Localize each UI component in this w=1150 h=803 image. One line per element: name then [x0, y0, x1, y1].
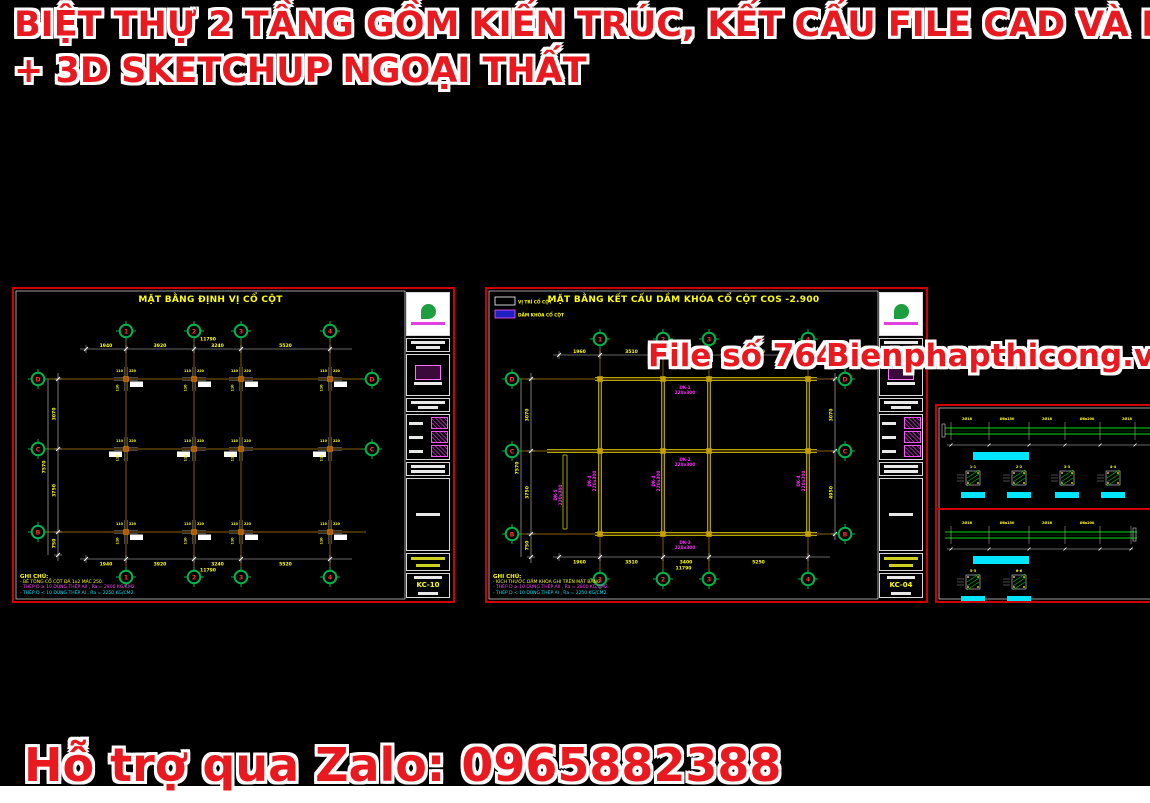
rebar-dot — [1013, 576, 1015, 578]
col-dim-text: 110 — [320, 454, 324, 462]
col-dim-text: 220 — [197, 439, 205, 443]
rebar-dot — [1107, 482, 1109, 484]
dim-text: 3750 — [525, 486, 531, 499]
grid-bubble-label: D — [842, 376, 847, 383]
column-mark — [192, 377, 197, 382]
dim-text: 3750 — [52, 484, 58, 497]
section-label: 3-3 — [1064, 465, 1071, 469]
col-dim-text: 110 — [320, 439, 328, 443]
section-label: 5-5 — [970, 569, 977, 573]
beam-size: 220x300 — [675, 545, 696, 551]
section-label: 6-6 — [1016, 569, 1023, 573]
col-dim-text: 110 — [231, 369, 239, 373]
rebar-dot — [1061, 472, 1063, 474]
col-dim-text: 110 — [116, 384, 120, 392]
grid-bubble-label: B — [36, 529, 41, 536]
column-mark — [328, 530, 333, 535]
column-mark — [328, 447, 333, 452]
section-hatch — [967, 578, 979, 586]
rebar-dot — [967, 576, 969, 578]
tb-sheet-number-box: KC-10 — [406, 573, 450, 598]
column-label-patch — [198, 382, 211, 388]
rebar-label: 2Ø18 — [1122, 416, 1133, 421]
col-dim-text: 110 — [184, 537, 188, 545]
section-title-bar — [1007, 492, 1031, 498]
column-mark — [192, 530, 197, 535]
col-dim-text: 220 — [197, 522, 205, 526]
column-mark — [124, 447, 129, 452]
col-dim-text: 110 — [320, 369, 328, 373]
dim-text: 3510 — [625, 349, 638, 355]
page-title: BIỆT THỰ 2 TẦNG GỒM KIẾN TRÚC, KẾT CẤU F… — [14, 2, 1150, 94]
column-mark — [805, 531, 811, 537]
section-title-bar — [961, 596, 985, 601]
rebar-dot — [1023, 586, 1025, 588]
section-hatch — [1013, 578, 1025, 586]
beam-size: 220x300 — [675, 462, 696, 468]
grid-bubble-label: 1 — [124, 328, 128, 335]
tb-text-box — [879, 478, 923, 551]
column-mark — [660, 531, 666, 537]
col-dim-text: 110 — [116, 537, 120, 545]
beam-size: 220x300 — [801, 471, 807, 492]
column-mark — [706, 531, 712, 537]
rebar-dot — [1107, 472, 1109, 474]
page-title-line2: + 3D SKETCHUP NGOẠI THẤT — [14, 48, 1150, 94]
section-label: 1-1 — [970, 465, 977, 469]
beam-size: 220x300 — [592, 471, 598, 492]
dim-text: 3240 — [211, 561, 224, 567]
beam-size: 220x300 — [558, 485, 564, 506]
beam-end-plate — [1133, 528, 1136, 541]
column-mark — [597, 376, 603, 382]
tb-text-box — [879, 398, 923, 412]
column-plan-drawing: 1940392032405520117901940392032405520117… — [14, 289, 407, 601]
beam-detail-drawing: 2Ø18Ø6a1502Ø18Ø6a2002Ø181-12-23-34-42Ø16… — [937, 406, 1150, 601]
tb-text-box — [406, 338, 450, 352]
section-title-bar — [1101, 492, 1125, 498]
dim-text: 3920 — [154, 561, 167, 567]
grid-bubble-label: 4 — [328, 574, 333, 581]
column-mark — [124, 530, 129, 535]
rebar-dot — [977, 576, 979, 578]
dim-text: 3070 — [52, 408, 58, 421]
grid-bubble-label: 3 — [239, 328, 243, 335]
column-label-patch — [245, 382, 258, 388]
dim-text: 750 — [52, 539, 58, 549]
dim-text: 3920 — [154, 343, 167, 349]
beam-label: DK-4220x300 — [796, 471, 807, 492]
note-line: - THÉP D < 10 DÙNG THÉP AI , Ra = 2250 K… — [20, 591, 230, 597]
rebar-dot — [1013, 482, 1015, 484]
col-dim-text: 220 — [333, 369, 341, 373]
stamp-icon — [431, 445, 448, 457]
column-mark — [597, 531, 603, 537]
col-dim-text: 110 — [116, 522, 124, 526]
col-dim-text: 110 — [231, 454, 235, 462]
column-mark — [660, 448, 666, 454]
rebar-dot — [1013, 586, 1015, 588]
column-label-patch — [130, 535, 143, 541]
rebar-dot — [1013, 472, 1015, 474]
tb-website-box — [879, 553, 923, 571]
col-dim-text: 110 — [184, 369, 192, 373]
section-hatch — [1013, 474, 1025, 482]
col-dim-text: 110 — [320, 384, 324, 392]
column-mark — [328, 377, 333, 382]
col-dim-text: 110 — [116, 439, 124, 443]
col-dim-text: 220 — [197, 369, 205, 373]
beam-end-plate — [942, 424, 945, 437]
dim-total-text: 7570 — [515, 462, 521, 475]
rebar-label: Ø6a150 — [1000, 520, 1015, 525]
tb-signature-box — [406, 414, 450, 460]
dim-text: 5250 — [752, 559, 765, 565]
grid-bubble-label: 1 — [598, 336, 602, 343]
col-dim-text: 220 — [244, 522, 252, 526]
dim-text: 1940 — [100, 343, 113, 349]
rebar-dot — [1023, 482, 1025, 484]
section-title-bar — [1007, 596, 1031, 601]
stamp-icon — [904, 445, 921, 457]
beam-plan-drawing: 1960351034005250117901960351034005250117… — [487, 289, 880, 601]
col-dim-text: 110 — [231, 537, 235, 545]
col-dim-text: 110 — [116, 369, 124, 373]
logo-caption-bar — [411, 322, 445, 325]
zalo-support-text: Hỗ trợ qua Zalo: 0965882388 — [24, 738, 781, 792]
legend-swatch-beam — [495, 310, 515, 318]
leaf-logo-icon — [894, 304, 909, 319]
sheet-number: KC-10 — [408, 581, 448, 590]
grid-bubble-label: C — [370, 446, 375, 453]
section-title-bar — [961, 492, 985, 498]
stamp-icon — [431, 431, 448, 443]
beam-label: DK-5220x300 — [553, 485, 564, 506]
beam-label: DK-4220x300 — [587, 471, 598, 492]
stamp-icon — [904, 417, 921, 429]
sheet2-title: MẶT BẰNG KẾT CẤU DẦM KHÓA CỔ CỘT COS -2.… — [487, 295, 880, 305]
column-label-patch — [198, 535, 211, 541]
rebar-dot — [1117, 482, 1119, 484]
column-mark — [805, 376, 811, 382]
stamp-icon — [431, 417, 448, 429]
col-dim-text: 110 — [320, 522, 328, 526]
col-dim-text: 110 — [184, 439, 192, 443]
rebar-dot — [967, 586, 969, 588]
col-dim-text: 110 — [231, 384, 235, 392]
dim-text: 5520 — [279, 343, 292, 349]
note-line: - THÉP D < 10 DÙNG THÉP AI , Ra = 2250 K… — [493, 591, 703, 597]
col-dim-text: 220 — [129, 522, 137, 526]
column-label-patch — [334, 382, 347, 388]
col-dim-text: 220 — [129, 439, 137, 443]
rebar-dot — [977, 586, 979, 588]
cad-sheet-beam-plan: 1960351034005250117901960351034005250117… — [485, 287, 928, 603]
col-dim-text: 110 — [184, 454, 188, 462]
legend-label: DẦM KHÓA CỔ CỘT — [518, 310, 564, 319]
col-dim-text: 110 — [231, 439, 239, 443]
dim-total-text: 7570 — [42, 461, 48, 474]
grid-bubble-label: 4 — [328, 328, 333, 335]
tb-text-box — [406, 478, 450, 551]
column-label-patch — [245, 535, 258, 541]
laptop-icon — [415, 365, 441, 380]
beam-label: DK-4220x300 — [651, 471, 662, 492]
beam-size: 220x300 — [675, 390, 696, 396]
grid-bubble-label: 4 — [806, 576, 811, 583]
section-hatch — [1061, 474, 1073, 482]
rebar-dot — [1023, 576, 1025, 578]
sheet2-notes: GHI CHÚ: - KÍCH THƯỚC DẦM KHÓA GHI TRÊN … — [493, 574, 703, 597]
column-label-patch — [130, 382, 143, 388]
grid-bubble-label: C — [510, 448, 515, 455]
rebar-label: Ø6a200 — [1080, 520, 1095, 525]
col-dim-text: 110 — [184, 522, 192, 526]
column-mark — [706, 376, 712, 382]
grid-bubble-label: B — [843, 531, 848, 538]
rebar-dot — [1023, 472, 1025, 474]
dim-text: 5520 — [279, 561, 292, 567]
grid-bubble-label: D — [369, 376, 374, 383]
dim-text: 1960 — [573, 559, 586, 565]
tb-text-box — [879, 462, 923, 476]
company-logo — [879, 292, 923, 336]
sheet1-title-block: KC-10 — [405, 291, 451, 599]
column-mark — [239, 530, 244, 535]
sheet1-title: MẶT BẰNG ĐỊNH VỊ CỔ CỘT — [14, 295, 407, 305]
col-dim-text: 220 — [333, 522, 341, 526]
dim-total-text: 11790 — [200, 337, 216, 343]
rebar-dot — [1117, 472, 1119, 474]
column-mark — [124, 377, 129, 382]
cad-sheet-column-plan: 1940392032405520117901940392032405520117… — [12, 287, 455, 603]
col-dim-text: 110 — [320, 537, 324, 545]
tb-website-box — [406, 553, 450, 571]
col-dim-text: 220 — [244, 439, 252, 443]
col-dim-text: 220 — [244, 369, 252, 373]
rebar-dot — [1061, 482, 1063, 484]
column-mark — [660, 376, 666, 382]
watermark-website: Bienphapthicong.vn — [826, 338, 1150, 374]
col-dim-text: 110 — [184, 384, 188, 392]
dim-text: 3400 — [680, 559, 693, 565]
grid-bubble-label: B — [510, 531, 515, 538]
rebar-dot — [977, 472, 979, 474]
rebar-dot — [977, 482, 979, 484]
section-title-bar — [1055, 492, 1079, 498]
grid-bubble-label: D — [35, 376, 40, 383]
detail-title-bar — [973, 556, 1029, 564]
column-mark — [597, 448, 603, 454]
tb-sheet-number-box: KC-04 — [879, 573, 923, 598]
column-mark — [805, 448, 811, 454]
section-hatch — [967, 474, 979, 482]
dim-text: 1940 — [100, 561, 113, 567]
tb-image-box — [406, 354, 450, 396]
rebar-label: 2Ø16 — [1042, 520, 1053, 525]
column-mark — [706, 448, 712, 454]
rebar-dot — [967, 482, 969, 484]
col-dim-text: 220 — [333, 439, 341, 443]
company-logo — [406, 292, 450, 336]
logo-caption-bar — [884, 322, 918, 325]
tb-text-box — [406, 398, 450, 412]
dim-text: 750 — [525, 541, 531, 551]
dim-text: 1960 — [573, 349, 586, 355]
grid-bubble-label: 2 — [192, 328, 196, 335]
rebar-dot — [967, 472, 969, 474]
leaf-logo-icon — [421, 304, 436, 319]
column-mark — [239, 377, 244, 382]
col-dim-text: 220 — [129, 369, 137, 373]
rebar-label: 2Ø18 — [1042, 416, 1053, 421]
rebar-label: 2Ø16 — [962, 520, 973, 525]
column-mark — [239, 447, 244, 452]
beam-size: 220x300 — [656, 471, 662, 492]
dim-text: 3240 — [211, 343, 224, 349]
col-dim-text: 110 — [231, 522, 239, 526]
dim-text: 3510 — [625, 559, 638, 565]
section-label: 4-4 — [1110, 465, 1117, 469]
rebar-label: 2Ø18 — [962, 416, 973, 421]
column-mark — [192, 447, 197, 452]
section-hatch — [1107, 474, 1119, 482]
detail-title-bar — [973, 452, 1029, 460]
column-label-patch — [334, 535, 347, 541]
dim-total-text: 11790 — [676, 566, 692, 572]
tb-text-box — [406, 462, 450, 476]
dim-text: 4950 — [829, 486, 835, 499]
stamp-icon — [904, 431, 921, 443]
grid-bubble-label: D — [509, 376, 514, 383]
sheet-number: KC-04 — [881, 581, 921, 590]
rebar-label: Ø6a200 — [1080, 416, 1095, 421]
rebar-dot — [1071, 482, 1073, 484]
watermark-file-number: File số 764 — [648, 338, 838, 374]
dim-text: 3070 — [829, 409, 835, 422]
page-title-line1: BIỆT THỰ 2 TẦNG GỒM KIẾN TRÚC, KẾT CẤU F… — [14, 2, 1150, 48]
page: BIỆT THỰ 2 TẦNG GỒM KIẾN TRÚC, KẾT CẤU F… — [0, 0, 1150, 803]
cad-sheet-beam-details: 2Ø18Ø6a1502Ø18Ø6a2002Ø181-12-23-34-42Ø16… — [935, 404, 1150, 603]
col-dim-text: 110 — [116, 454, 120, 462]
grid-bubble-label: C — [843, 448, 848, 455]
grid-bubble-label: 3 — [707, 576, 711, 583]
dim-text: 3070 — [525, 409, 531, 422]
grid-bubble-label: C — [36, 446, 41, 453]
tb-signature-box — [879, 414, 923, 460]
rebar-label: Ø6a150 — [1000, 416, 1015, 421]
grid-bubble-label: 3 — [239, 574, 243, 581]
section-label: 2-2 — [1016, 465, 1023, 469]
sheet1-notes: GHI CHÚ: - BÊ TÔNG CỔ CỘT ĐÁ 1x2 MÁC 250… — [20, 574, 230, 597]
rebar-dot — [1071, 472, 1073, 474]
